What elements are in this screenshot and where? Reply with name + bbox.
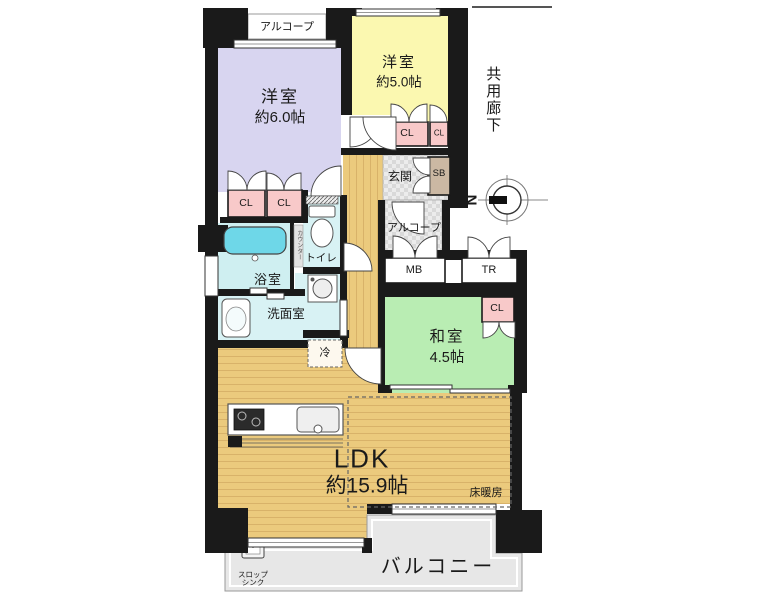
ldk-size: 約15.9帖: [326, 474, 409, 497]
common-corridor-label: 共用廊下: [484, 66, 501, 134]
compass: [478, 175, 548, 225]
japanese-room-size: 4.5帖: [430, 351, 465, 367]
entry-label: 玄関: [388, 170, 412, 183]
compass-needle: [489, 196, 507, 204]
western6-name: 洋室: [261, 89, 299, 108]
trunk-label: TR: [482, 264, 497, 276]
washroom-label: 洗面室: [267, 308, 305, 322]
north-label: N: [462, 195, 479, 206]
fridge-label: 冷: [320, 347, 331, 359]
western6-size: 約6.0帖: [255, 110, 306, 127]
bath-drain: [252, 255, 258, 261]
closet-label: CL: [239, 198, 252, 210]
toilet-label: トイレ: [305, 253, 337, 265]
meter-box-label: MB: [406, 264, 423, 276]
toilet-bowl: [311, 219, 333, 247]
floor-heating-label: 床暖房: [470, 487, 503, 499]
toilet-tank: [309, 206, 335, 217]
toilet-shelf: [306, 196, 338, 204]
closet-label: CL: [490, 303, 503, 315]
western5-size: 約5.0帖: [376, 76, 422, 91]
japanese-room-name: 和室: [429, 328, 464, 345]
closet-label: CL: [277, 198, 290, 210]
shoebox-label: SB: [433, 169, 446, 179]
sink-faucet: [314, 425, 322, 433]
floor-plan: アルコープ 洋室 約6.0帖 洋室 約5.0帖 共用廊下 CL CL CL CL…: [0, 0, 775, 600]
closet-label: CL: [434, 130, 444, 139]
bathtub: [224, 227, 286, 254]
ldk-name: LDK: [334, 445, 391, 474]
slop-sink-label: スロップ シンク: [238, 571, 268, 588]
washing-machine-drum: [313, 279, 332, 298]
washing-machine-knob: [311, 278, 315, 282]
counter-end: [228, 436, 242, 447]
alcove-entry-label: アルコープ: [387, 222, 441, 234]
western5-name: 洋室: [382, 55, 416, 72]
bath-label: 浴室: [254, 273, 282, 287]
balcony-label: バルコニー: [381, 556, 496, 578]
closet-label: CL: [400, 128, 413, 140]
counter-label: カウンター: [295, 230, 302, 260]
alcove-top-label: アルコープ: [260, 21, 314, 33]
washbasin-bowl: [226, 307, 246, 331]
